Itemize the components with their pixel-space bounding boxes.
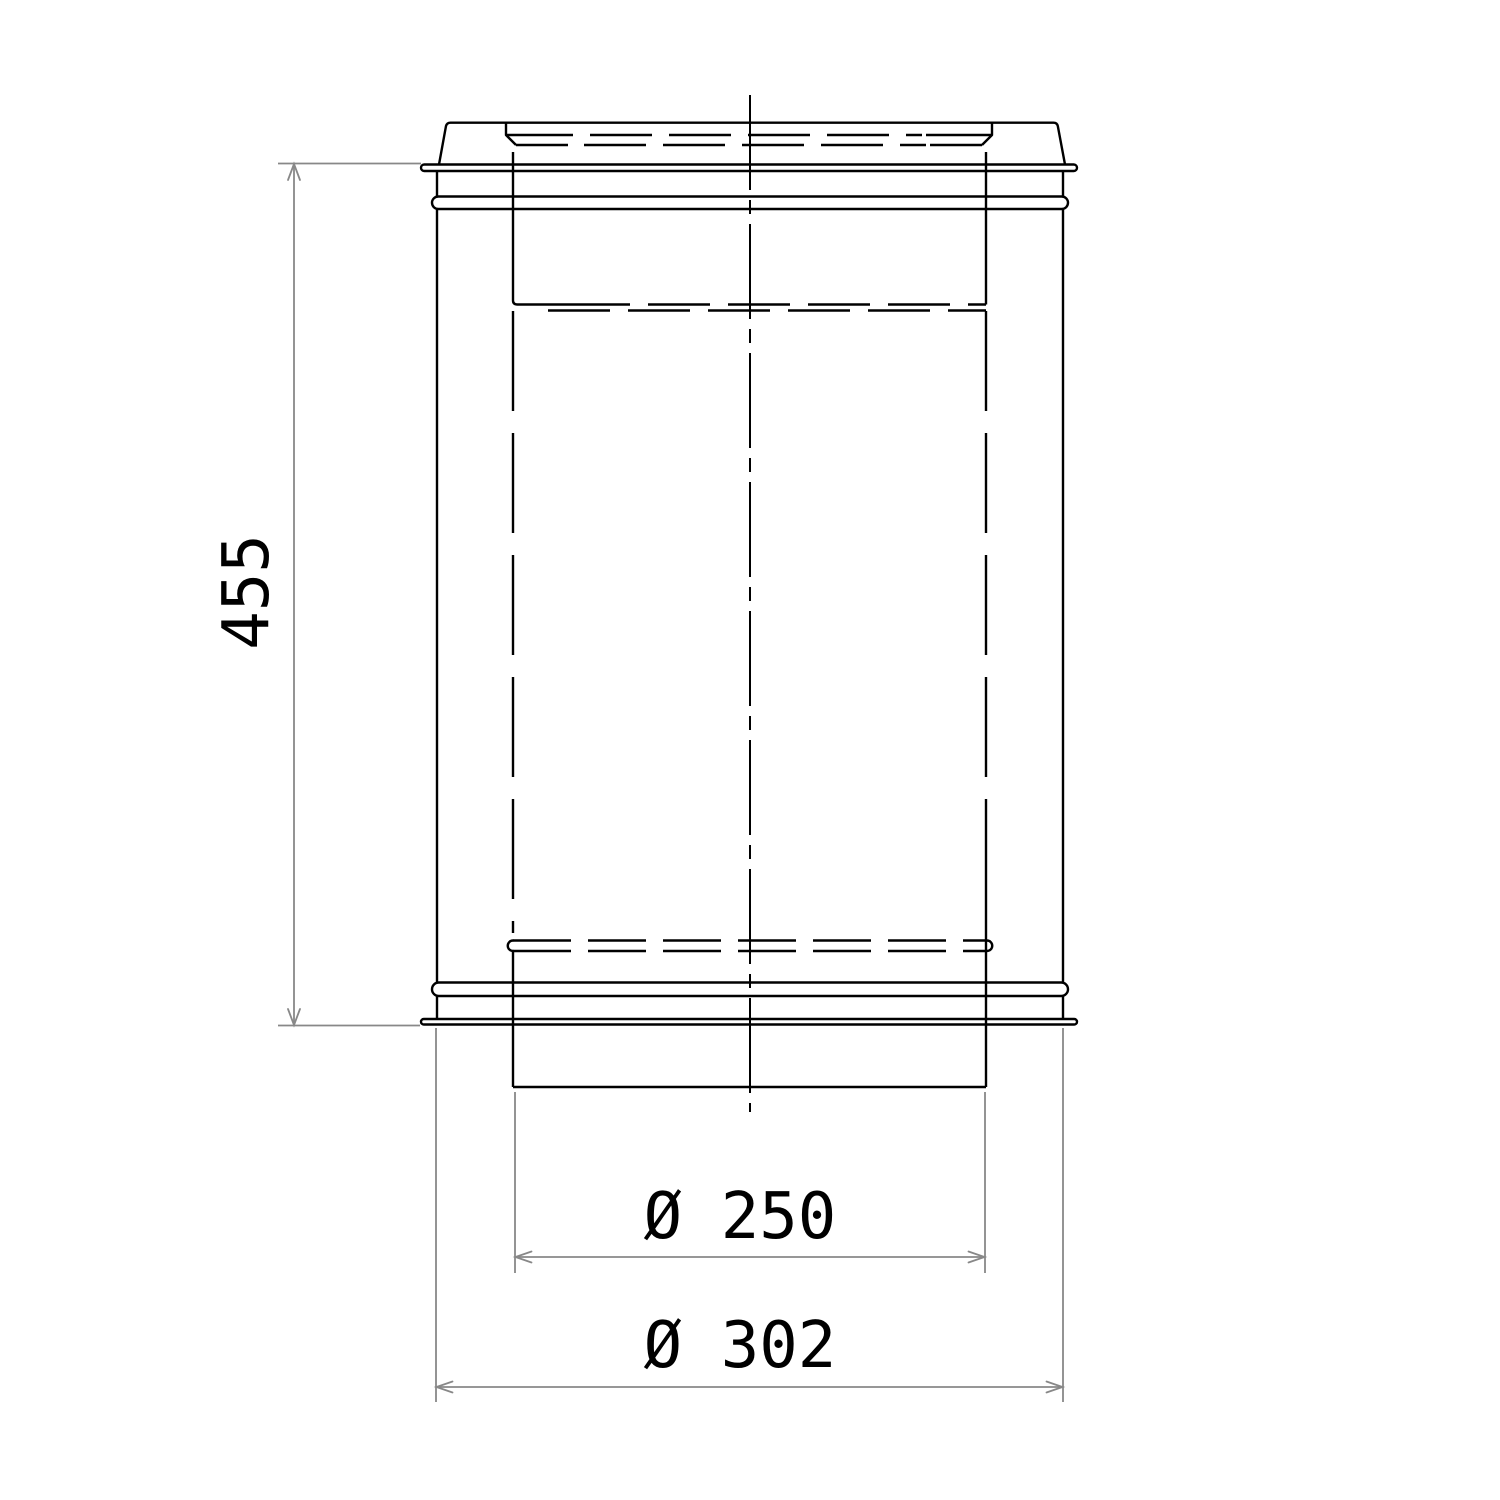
liner-bead-right-cap: [987, 941, 992, 952]
collar-outer-profile: [439, 123, 1065, 165]
liner-bead-left-cap: [508, 941, 513, 952]
dimension-length-455: [278, 164, 421, 1026]
dimension-label-inner-diameter: Ø 250: [644, 1180, 837, 1254]
pipe-section-drawing: 455 Ø 250 Ø 302: [0, 0, 1500, 1500]
inner-liner-left-top: [513, 152, 568, 305]
dimension-label-length: 455: [210, 534, 284, 650]
technical-drawing-canvas: 455 Ø 250 Ø 302: [0, 0, 1500, 1500]
dimension-label-outer-diameter: Ø 302: [644, 1309, 837, 1383]
